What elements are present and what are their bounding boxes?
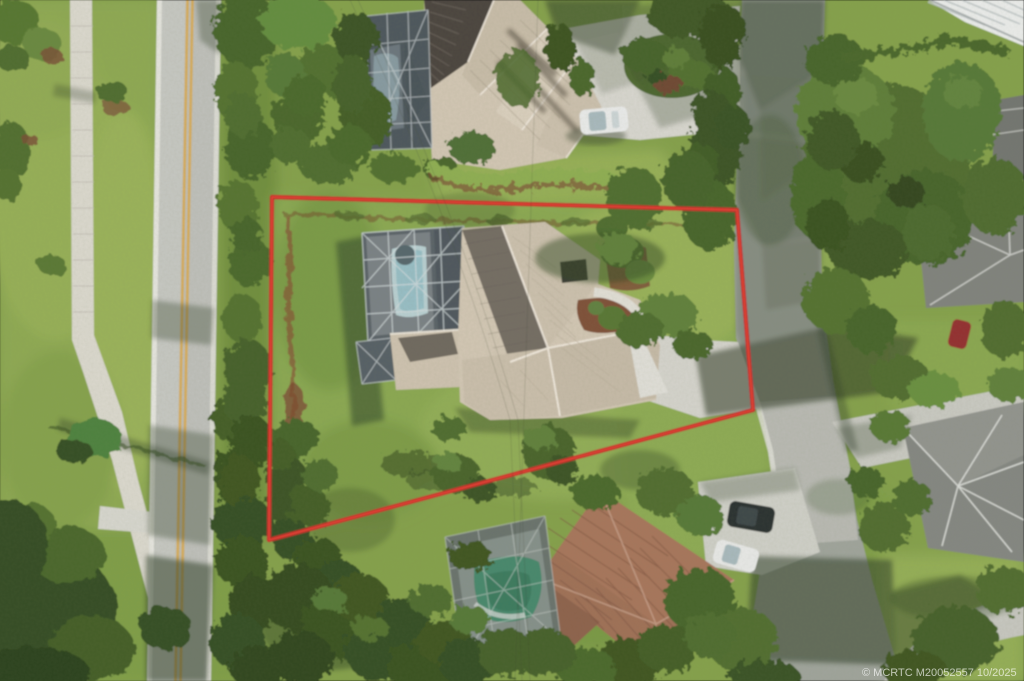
svg-text:© MCRTC M20052557 10/2025: © MCRTC M20052557 10/2025 (862, 667, 1017, 679)
